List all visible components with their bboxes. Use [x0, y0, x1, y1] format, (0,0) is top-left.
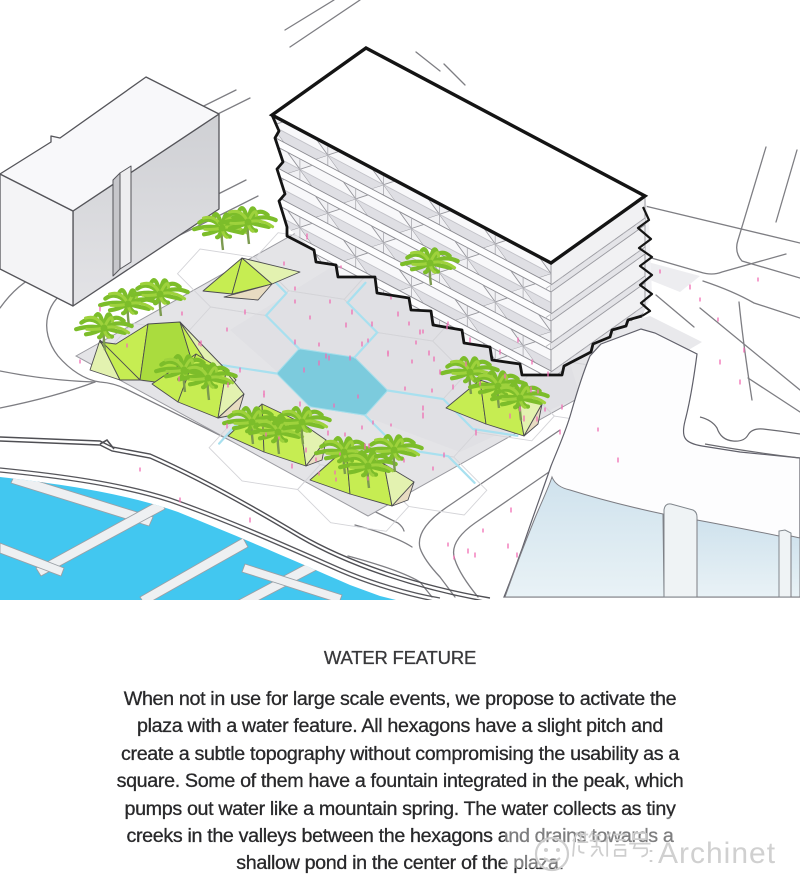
svg-text:Archinet: Archinet [658, 837, 776, 870]
